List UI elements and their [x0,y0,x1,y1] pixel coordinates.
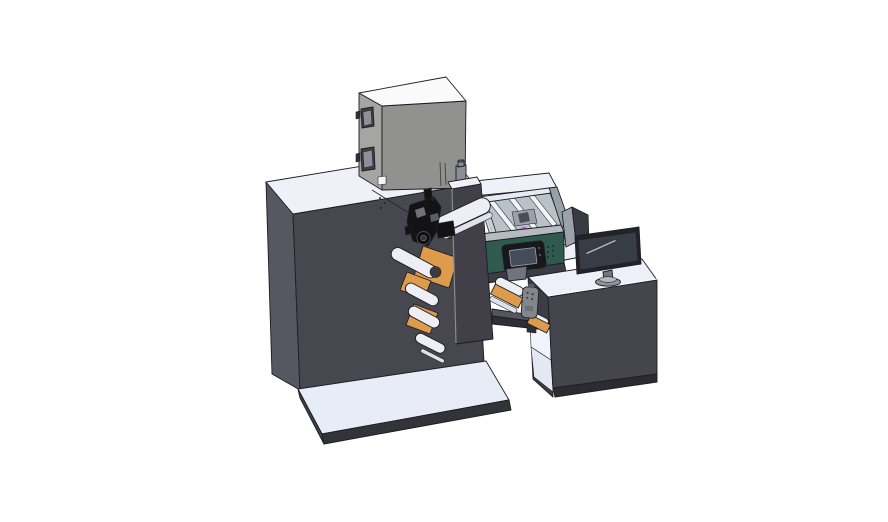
box-window-glass [363,150,373,168]
cad-viewport [0,0,888,522]
vent-hole [552,250,554,252]
vent-hole [547,251,549,253]
mech-side-block [436,221,455,238]
vent-hole [552,255,554,257]
hmi-bracket [506,266,527,281]
pendant-hanger [528,284,534,288]
vent-hole [547,246,549,248]
box-front-face [382,101,466,190]
box-hinge [356,111,360,119]
pendant-keypad [525,306,533,312]
machine-render [0,0,888,522]
box-hinge [356,153,360,162]
screw-dot [380,207,382,209]
vent-hole [552,245,554,247]
pendant-remote [521,283,539,318]
vent-hole [547,256,549,258]
bottle-cap-top [458,160,464,162]
mech-knob [431,197,435,201]
scene-root [266,77,657,444]
enclosure-machinery-dark [518,212,530,223]
screw-dot [379,197,381,199]
roller-end-cap [430,267,441,278]
mech-bracket [405,225,413,235]
pendant-body [521,286,539,318]
screw-dot [384,202,386,204]
hmi-screen [509,247,537,266]
mech-spindle-hub [421,235,427,241]
top-unit-box [356,77,466,190]
box-top-face [359,77,466,106]
box-label-plate [378,176,386,185]
desk-front-face [548,280,657,388]
monitor-base-top [600,277,617,283]
box-window-glass [363,110,372,126]
